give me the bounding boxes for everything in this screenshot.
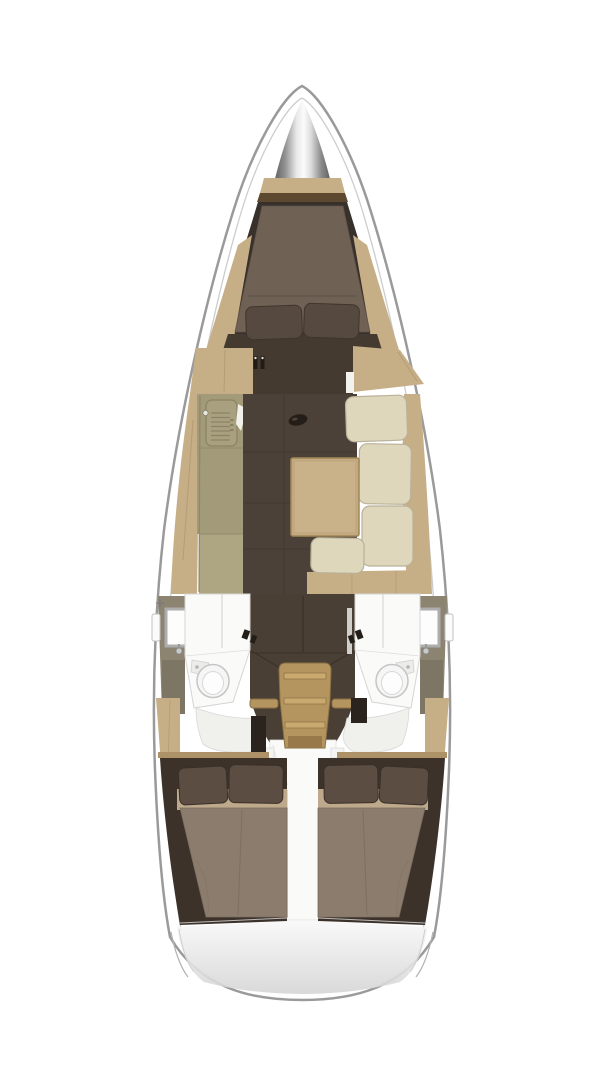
bulkhead-door-gap [346,372,354,393]
transom [171,921,433,994]
vberth-pillow-port [245,305,302,340]
aft-shelf-rail-starboard [337,752,447,758]
bow-shelf [260,178,345,193]
galley-counter-lower [199,534,244,594]
galley-stove [206,400,237,446]
starboard-sink-drain [406,665,410,669]
yacht-floor-plan-canvas: Sailing yacht interior layout - overhead… [0,0,605,1080]
bulkhead-cabinet-port [190,348,253,394]
dresser-handle-dot-2 [261,357,263,359]
saloon [171,394,432,594]
bow-shelf-edge [257,193,348,202]
starboard-faucet [423,648,429,654]
step-bottom-shadow [288,736,322,748]
companionway-panel-starboard [351,698,367,723]
starboard-toilet-seat [382,672,403,695]
saloon-table-top [295,462,355,532]
port-sink-drain [195,665,199,669]
yacht-floor-plan: Sailing yacht interior layout - overhead… [0,0,605,1080]
settee-base-band [307,570,431,594]
stove-grate-lines [211,413,230,440]
settee-cushion-mid-lower [362,506,413,566]
grab-rail-port [250,699,278,708]
starboard-porthole [445,614,453,641]
port-toilet-seat [203,672,224,695]
port-aft-pillow-1 [178,766,228,805]
forward-bulkhead [190,346,424,394]
bulkhead-dresser [253,348,353,394]
port-aft-pillows [178,765,283,806]
settee-cushion-corner [311,538,365,574]
bulkhead-cabinet-starboard [353,346,424,392]
transom-face [177,921,428,994]
port-faucet [176,648,182,654]
stove-knob [203,410,208,415]
starboard-head-door-gap [347,608,352,654]
settee-cushion-mid-upper [358,444,411,505]
port-aft-pillow-2 [229,765,284,804]
port-porthole [152,614,160,641]
starboard-aft-pillows [324,765,429,806]
starboard-aft-pillow-2 [379,766,429,805]
dresser-handle-dot-1 [254,357,256,359]
stove-side-marks [230,419,234,431]
companionway-panel-port [251,716,266,758]
starboard-aft-pillow-1 [324,765,379,804]
vberth-pillow-starboard [303,303,359,339]
settee-cushion-back [345,395,408,442]
aft-shelf-rail-port [158,752,269,758]
